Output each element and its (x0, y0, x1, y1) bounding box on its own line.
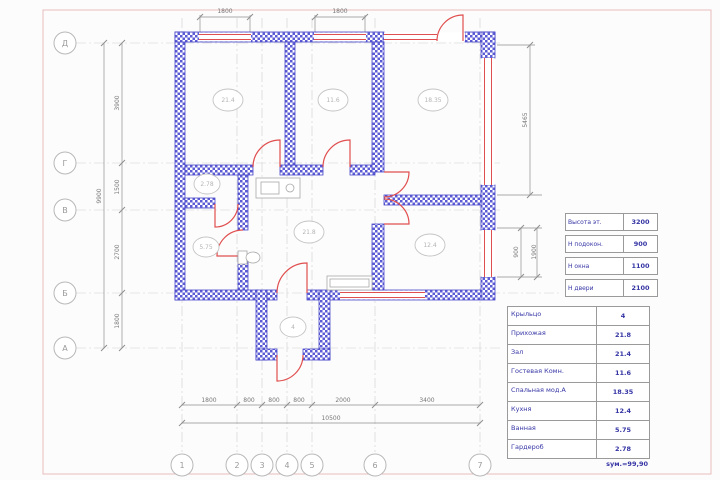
room-row: Зал 21.4 (508, 345, 649, 364)
room-name: Крыльцо (508, 307, 596, 325)
room-area: 18.35 (596, 383, 649, 401)
spec-label: Высота эт. (566, 218, 623, 227)
axis-label: Г (63, 159, 68, 168)
axis-label: 1 (179, 461, 184, 470)
dim-label: 1900 (531, 244, 538, 259)
dim-label: 10500 (321, 415, 340, 422)
sink-basin (261, 182, 279, 194)
room-name: Спальная мод.А (508, 383, 596, 401)
spec-row: Н подокон. 900 (565, 235, 658, 253)
spec-label: Н двери (566, 284, 623, 293)
axis-label: Б (62, 289, 68, 298)
room-area: 21.4 (596, 345, 649, 363)
drawing-sheet: 1800 1800 9900 3900 1500 2700 1800 1800 … (0, 0, 720, 480)
dim-label: 800 (268, 397, 280, 404)
spec-value: 900 (623, 236, 657, 252)
room-name: Гардероб (508, 440, 596, 458)
dimension-lines (104, 15, 542, 423)
room-name: Ванная (508, 421, 596, 439)
room-area: 11.6 (596, 364, 649, 382)
spec-value: 1100 (623, 258, 657, 274)
dim-label: 800 (293, 397, 305, 404)
room-area-tag: 5.75 (199, 244, 213, 251)
sink-tap (286, 184, 294, 192)
axis-label: 2 (234, 461, 239, 470)
dim-label: 2000 (335, 397, 350, 404)
room-name: Зал (508, 345, 596, 363)
dimension-ticks (101, 14, 540, 426)
axis-label: 3 (259, 461, 264, 470)
axis-label: 5 (309, 461, 314, 470)
dim-label: 3900 (114, 95, 121, 110)
axis-label: 6 (372, 461, 377, 470)
room-name: Гостевая Комн. (508, 364, 596, 382)
axis-label: А (62, 344, 68, 353)
room-area: 2.78 (596, 440, 649, 458)
spec-row: Высота эт. 3200 (565, 213, 658, 231)
room-area-tag: 4 (291, 324, 295, 331)
dim-label: 1800 (332, 8, 347, 15)
room-row: Ванная 5.75 (508, 421, 649, 440)
dim-label: 800 (243, 397, 255, 404)
axis-markers-bottom: 1 2 3 4 5 6 7 (171, 454, 491, 476)
axis-label: Д (62, 39, 68, 48)
room-row: Крыльцо 4 (508, 307, 649, 326)
axis-label: 4 (284, 461, 289, 470)
total-area-text: sум.=99,90 (507, 460, 648, 468)
room-area-tag: 2.78 (200, 181, 214, 188)
room-area: 5.75 (596, 421, 649, 439)
room-area: 21.8 (596, 326, 649, 344)
spec-label: Н подокон. (566, 240, 623, 249)
room-row: Спальная мод.А 18.35 (508, 383, 649, 402)
spec-table: Высота эт. 3200 Н подокон. 900 Н окна 11… (565, 213, 658, 301)
dim-label: 1500 (114, 179, 121, 194)
axis-markers-left: Д Г В Б А (54, 32, 76, 359)
dim-label: 9900 (96, 188, 103, 203)
room-area-tag: 18.35 (424, 97, 441, 104)
room-area-tag: 21.8 (302, 229, 316, 236)
dim-label: 3400 (419, 397, 434, 404)
bath-tub-inner (330, 279, 369, 287)
room-area-tag: 11.6 (326, 97, 340, 104)
room-area: 4 (596, 307, 649, 325)
room-area: 12.4 (596, 402, 649, 420)
spec-value: 3200 (623, 214, 657, 230)
dim-label: 2700 (114, 244, 121, 259)
axis-label: 7 (477, 461, 482, 470)
dim-label: 900 (513, 246, 520, 258)
spec-row: Н окна 1100 (565, 257, 658, 275)
spec-value: 2100 (623, 280, 657, 296)
room-row: Гостевая Комн. 11.6 (508, 364, 649, 383)
walls-masonry (175, 32, 495, 360)
dim-label: 1800 (114, 313, 121, 328)
dim-label: 1800 (201, 397, 216, 404)
room-area-tag: 12.4 (423, 242, 437, 249)
room-schedule-table: Крыльцо 4 Прихожая 21.8 Зал 21.4 Гостева… (507, 306, 650, 459)
toilet-bowl (246, 252, 260, 263)
room-name: Прихожая (508, 326, 596, 344)
room-name: Кухня (508, 402, 596, 420)
spec-label: Н окна (566, 262, 623, 271)
room-row: Гардероб 2.78 (508, 440, 649, 458)
dim-label: 1800 (217, 8, 232, 15)
room-row: Кухня 12.4 (508, 402, 649, 421)
dim-label: 5465 (522, 112, 529, 127)
room-area-tag: 21.4 (221, 97, 235, 104)
spec-row: Н двери 2100 (565, 279, 658, 297)
room-row: Прихожая 21.8 (508, 326, 649, 345)
axis-label: В (62, 206, 68, 215)
